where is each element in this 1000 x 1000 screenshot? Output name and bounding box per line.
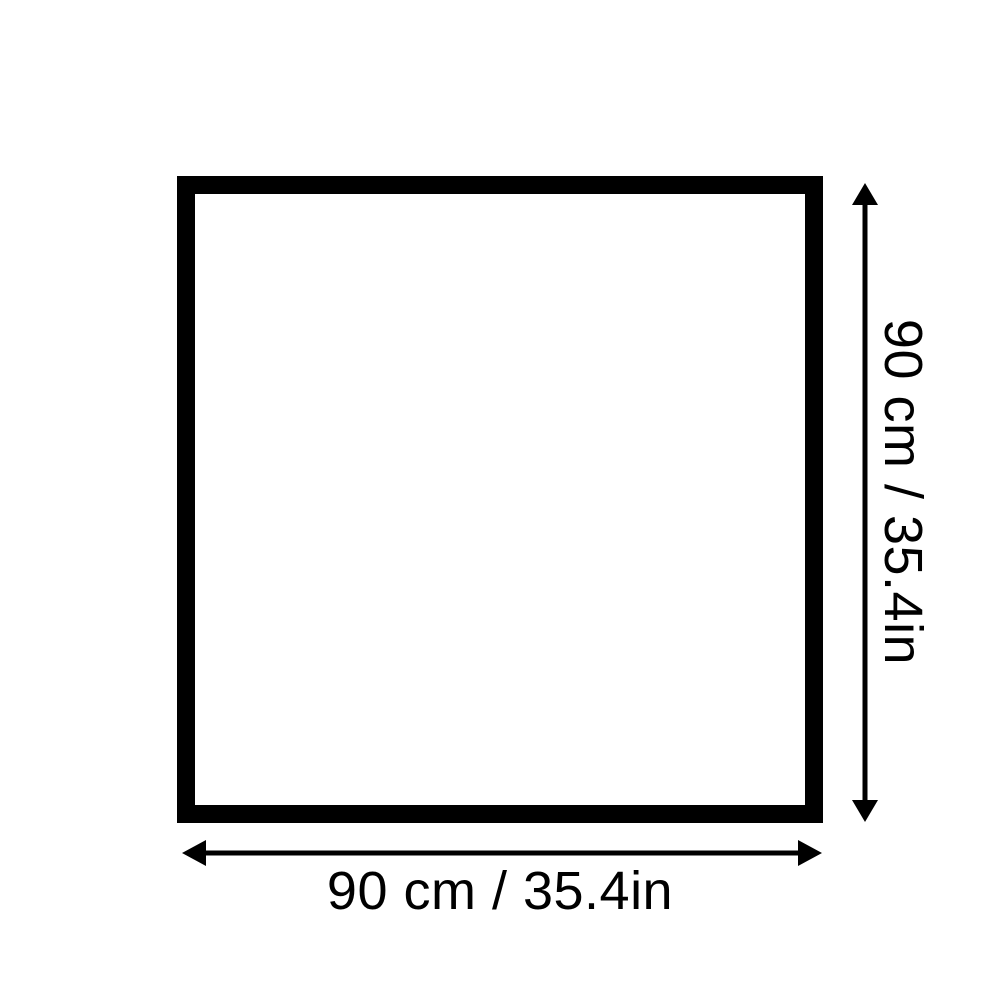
dimension-diagram: 90 cm / 35.4in 90 cm / 35.4in: [0, 0, 1000, 1000]
arrowhead-left-icon: [182, 840, 206, 866]
arrowhead-right-icon: [798, 840, 822, 866]
arrowhead-up-icon: [852, 183, 878, 205]
width-dimension-label: 90 cm / 35.4in: [177, 864, 823, 918]
height-dimension-label: 90 cm / 35.4in: [876, 319, 930, 665]
arrowhead-down-icon: [852, 800, 878, 822]
product-outline-square: [177, 176, 823, 823]
